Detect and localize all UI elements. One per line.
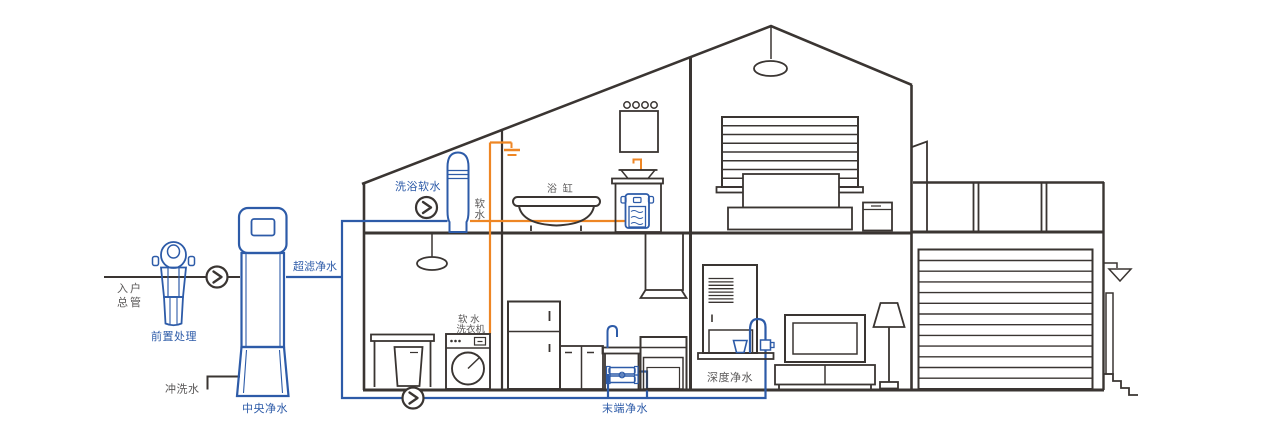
central-purifier-unit [237,208,289,396]
mirror [620,111,658,152]
garage-door [919,250,1093,390]
bathtub [513,197,600,231]
kitchen-cabinets [560,346,603,389]
fridge [508,302,560,390]
kitchen-faucet-icon [608,326,618,348]
washing-machine [446,334,490,389]
pendant-lamp-icon [754,26,787,76]
bed-base [728,208,852,230]
label-bath-softener: 洗浴软水 [395,179,441,193]
ultrafiltered-main-pipe [342,221,766,398]
dispenser-counter [698,353,774,359]
stove-oven [641,337,687,390]
pre-filter-device [153,242,195,325]
floor-lamp-icon [874,303,905,389]
downspout [1106,293,1113,374]
deep-purifier-dispenser [698,265,774,359]
kitchen [508,233,687,390]
water-cup-icon [734,341,748,353]
dispenser-faucet-icon [750,319,774,353]
bath-softener-unit [448,153,469,233]
vanity-faucet-icon [634,160,642,171]
label-terminal-purifier: 末端净水 [602,401,648,415]
vanity-sink [619,170,658,179]
shower-head-icon [504,143,520,156]
label-soft-washer-line2: 洗衣机 [457,324,486,336]
laundry-table [371,335,434,388]
label-incoming-main-line1: 入户 [117,281,143,295]
bedroom [717,26,893,231]
flush-drain-pipe [208,377,241,390]
label-central-purifier: 中央净水 [242,401,288,415]
diagram-canvas: 入户 总管 前置处理 冲洗水 中央净水 超滤净水 洗浴软水 软 水 浴 缸 软 … [0,0,1280,434]
flow-arrow-icon-inlet [207,267,228,288]
living-room [698,265,905,390]
tv-stand [775,365,875,390]
nightstand [863,203,892,231]
label-deep-purifier: 深度净水 [707,370,753,384]
label-flush-water: 冲洗水 [165,382,200,396]
water-heater-unit [621,194,654,228]
range-hood [641,233,687,298]
laundry-basket [395,347,423,386]
label-soft-water-char2: 水 [475,209,486,221]
laundry-room [371,234,490,389]
label-pre-treatment: 前置处理 [151,329,197,343]
vanity-cabinet [616,184,662,233]
flow-arrow-icon-ground [403,388,424,409]
ceiling-lamp-icon [417,234,447,270]
label-ultrafiltration: 超滤净水 [293,259,337,273]
water-purification-diagram: 入户 总管 前置处理 冲洗水 中央净水 超滤净水 洗浴软水 软 水 浴 缸 软 … [0,0,1280,434]
entry-steps [1104,374,1138,395]
flow-arrow-icon-softener [416,197,437,218]
garage-section [911,142,1138,396]
under-sink-ro-unit [607,367,639,384]
label-incoming-main-line2: 总管 [117,295,143,309]
label-bathtub: 浴 缸 [547,182,574,195]
rear-roof-edge [912,142,927,233]
vanity-lights [624,102,657,108]
wall-lamp-icon [1104,263,1131,281]
bed-headboard [743,174,839,208]
bathroom [504,102,663,232]
tv [785,315,865,362]
railing-posts [974,182,1047,232]
